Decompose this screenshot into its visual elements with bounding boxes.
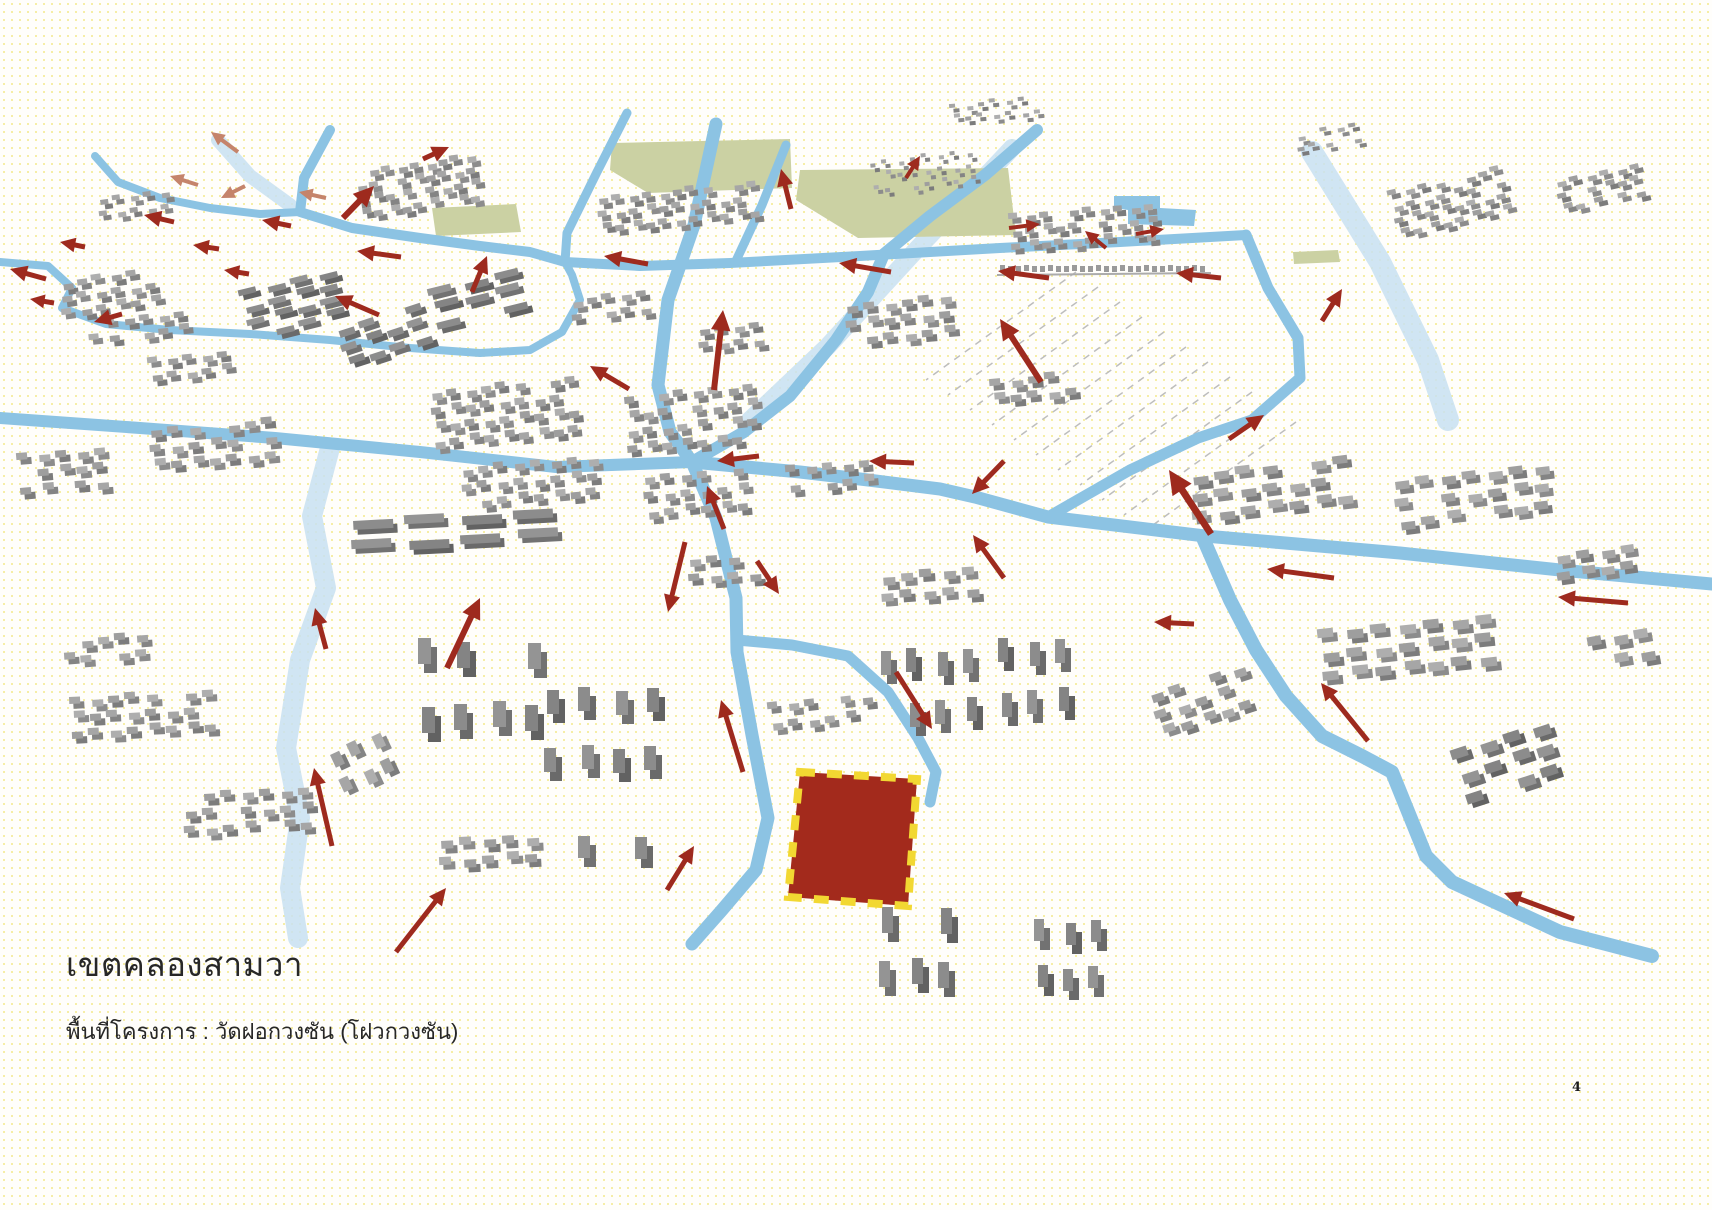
building (439, 856, 451, 865)
building (1030, 239, 1039, 246)
building (569, 411, 580, 419)
building (738, 503, 749, 511)
building (428, 164, 438, 171)
building (1428, 636, 1445, 647)
building (554, 429, 565, 437)
building (942, 587, 955, 596)
building (484, 435, 495, 443)
building (466, 167, 476, 174)
flow-arrow-shaft (1178, 484, 1211, 534)
flow-arrow-shaft (714, 324, 721, 390)
building (550, 475, 561, 483)
building (924, 591, 937, 600)
building (1474, 632, 1491, 643)
building (184, 826, 195, 834)
building (886, 170, 891, 175)
building-shadow (953, 108, 959, 113)
building (280, 805, 291, 813)
building (1088, 966, 1098, 988)
building (733, 197, 743, 204)
building (1347, 628, 1364, 639)
building (1376, 648, 1393, 659)
canal (565, 113, 627, 262)
building (572, 314, 583, 321)
building (660, 473, 671, 481)
flow-arrow-shaft (671, 542, 685, 600)
building (455, 172, 465, 179)
building (824, 715, 835, 723)
building (867, 336, 879, 344)
building (747, 418, 758, 426)
building (697, 471, 708, 479)
building (549, 395, 560, 403)
shop-unit (1152, 266, 1157, 272)
shop-unit (1056, 266, 1061, 272)
building (900, 313, 912, 321)
building (962, 566, 975, 575)
building (147, 356, 158, 363)
building (938, 652, 948, 676)
building (572, 470, 583, 478)
building (748, 397, 759, 405)
building (606, 311, 617, 318)
building (245, 421, 257, 429)
building (917, 295, 929, 303)
building (1068, 222, 1077, 229)
building (168, 358, 179, 365)
building (615, 224, 625, 231)
building (912, 958, 923, 984)
building (481, 386, 492, 394)
building (243, 792, 254, 800)
building-cluster (1034, 919, 1107, 1000)
building (431, 407, 442, 415)
building (135, 649, 146, 657)
building (78, 452, 90, 460)
building (672, 389, 683, 397)
building-shadow (998, 119, 1004, 124)
building (436, 420, 447, 428)
building (202, 808, 213, 816)
building-shadow (889, 192, 894, 197)
building (94, 447, 106, 455)
building (616, 691, 628, 715)
building (1428, 661, 1445, 672)
building (1030, 642, 1040, 666)
building (965, 116, 971, 121)
building (859, 460, 870, 468)
building (534, 494, 545, 502)
green-field (432, 204, 521, 236)
green-field (1293, 250, 1340, 264)
building (717, 434, 728, 442)
building (873, 185, 878, 190)
building (567, 457, 578, 465)
building (450, 423, 461, 431)
building-cluster (63, 631, 154, 670)
flow-arrow-shaft (1570, 598, 1628, 603)
building (1450, 656, 1467, 667)
building-cluster (880, 565, 984, 609)
building (1008, 213, 1017, 220)
building (520, 411, 531, 419)
building (1494, 504, 1509, 514)
building (1394, 498, 1409, 508)
building (43, 482, 55, 490)
building (1461, 470, 1476, 480)
building-shadow (970, 121, 976, 126)
building (622, 295, 633, 302)
building (463, 470, 474, 478)
map-slide: เขตคลองสามวา พื้นที่โครงการ : วัดฝอกวงซั… (0, 0, 1712, 1210)
building (149, 722, 160, 730)
building (514, 397, 525, 405)
building-shadow (947, 181, 952, 186)
building (688, 216, 698, 223)
building (534, 413, 545, 421)
building (260, 416, 272, 424)
building-cluster (767, 691, 880, 737)
building (1475, 614, 1492, 625)
building (98, 482, 110, 490)
flow-arrow-head (10, 266, 29, 282)
building (188, 442, 200, 450)
building (923, 315, 935, 323)
building (1442, 476, 1457, 486)
building-shadow (941, 171, 946, 176)
building (402, 206, 412, 213)
building-shadow (960, 173, 965, 178)
flow-arrow-shaft (1279, 571, 1334, 578)
building (807, 466, 818, 474)
building (976, 112, 982, 117)
building (955, 168, 960, 173)
building-shadow (1022, 101, 1028, 106)
building-shadow (878, 190, 883, 195)
building (227, 439, 239, 447)
building (704, 187, 714, 194)
building (88, 728, 99, 736)
building (1091, 920, 1101, 942)
building (690, 203, 700, 210)
building (634, 219, 644, 226)
building (464, 419, 475, 427)
building (39, 454, 51, 462)
building (413, 202, 423, 209)
building (1113, 205, 1122, 212)
flow-arrow-shaft (396, 897, 439, 952)
building (924, 182, 929, 187)
building (129, 712, 140, 720)
building (732, 437, 743, 445)
building-cluster (350, 507, 563, 558)
building (518, 491, 529, 499)
building (883, 332, 895, 340)
flow-arrow-shaft (1008, 331, 1041, 382)
building (446, 388, 457, 396)
building (1055, 639, 1065, 663)
building (443, 188, 453, 195)
building (554, 408, 565, 416)
building-shadow (972, 158, 977, 163)
building (645, 477, 656, 485)
building (92, 462, 104, 470)
building (683, 437, 694, 445)
flow-arrow-shaft (667, 856, 688, 890)
building (1101, 209, 1110, 216)
flow-arrow-head (310, 768, 326, 786)
building (1007, 101, 1013, 106)
building (914, 186, 919, 191)
building-shadow (1011, 105, 1017, 110)
building (941, 297, 953, 305)
building (642, 426, 653, 434)
building (978, 102, 984, 107)
building (863, 301, 875, 309)
building (661, 193, 671, 200)
building-cluster (622, 381, 767, 461)
building (380, 165, 390, 172)
building (692, 405, 703, 413)
building (864, 474, 875, 482)
building (885, 188, 890, 193)
building (677, 220, 687, 227)
district-map (0, 0, 1712, 1210)
canal (0, 418, 692, 467)
building (223, 824, 234, 832)
building (644, 412, 655, 420)
building (20, 487, 32, 495)
building (1298, 136, 1306, 141)
building (211, 437, 223, 445)
building (870, 163, 875, 168)
shop-unit (1096, 265, 1101, 271)
building (659, 393, 670, 401)
building-shadow (925, 158, 930, 163)
building (451, 402, 462, 410)
flow-arrow-head (1267, 563, 1285, 579)
building (1481, 657, 1498, 668)
building (879, 961, 890, 987)
building (717, 487, 728, 495)
building-cluster (570, 288, 657, 328)
building (785, 464, 796, 472)
building (90, 713, 101, 721)
building (173, 311, 184, 318)
building (578, 836, 590, 858)
building (1018, 97, 1024, 102)
building (454, 704, 467, 730)
building (647, 688, 659, 712)
building (729, 388, 740, 396)
building (635, 837, 647, 859)
building (55, 450, 67, 458)
building (504, 429, 515, 437)
building (624, 396, 635, 404)
building (883, 577, 896, 586)
building (897, 172, 902, 177)
flow-arrow-head (170, 174, 185, 186)
building (60, 463, 72, 471)
building-shadow (982, 107, 988, 112)
building (1420, 515, 1435, 525)
building (899, 589, 912, 598)
building (1044, 371, 1056, 379)
building (186, 693, 197, 701)
building-shadow (943, 160, 948, 165)
flow-arrow-head (144, 211, 162, 227)
building (74, 710, 85, 718)
building (698, 418, 709, 426)
building (690, 559, 701, 567)
building (1453, 619, 1470, 630)
building (284, 819, 295, 827)
building (738, 208, 748, 215)
field-row-line (970, 302, 1120, 410)
building (847, 306, 859, 314)
building (1044, 223, 1053, 230)
building (673, 189, 683, 196)
building (629, 410, 640, 418)
site-layer (788, 772, 917, 906)
building (513, 478, 524, 486)
building-shadow (929, 186, 934, 191)
building (449, 437, 460, 445)
building (88, 333, 99, 340)
building (647, 203, 657, 210)
building (571, 492, 582, 500)
flow-arrow-head (711, 310, 730, 331)
building (810, 720, 821, 728)
building (611, 194, 621, 201)
building (153, 375, 164, 382)
building (1346, 647, 1363, 658)
building (1535, 466, 1550, 476)
flow-arrow-head (262, 215, 280, 231)
building (727, 402, 738, 410)
flow-arrow-shaft (317, 780, 332, 846)
building (1066, 923, 1076, 945)
building (627, 445, 638, 453)
building (663, 428, 674, 436)
building (749, 322, 760, 329)
building (659, 206, 669, 213)
building (516, 383, 527, 391)
building (147, 694, 158, 702)
building (76, 466, 88, 474)
building (282, 791, 293, 799)
building (144, 332, 155, 339)
building (966, 164, 971, 169)
building (863, 697, 874, 705)
building (1023, 113, 1029, 118)
flow-arrow-shaft (724, 711, 743, 772)
building-shadow (958, 184, 963, 189)
building (1489, 471, 1504, 481)
shop-unit (1176, 266, 1181, 272)
building (482, 855, 494, 864)
building (502, 835, 514, 844)
shop-unit (1040, 266, 1045, 272)
building (179, 323, 190, 330)
building (203, 355, 214, 362)
building (72, 731, 83, 739)
building (92, 699, 103, 707)
building (967, 589, 980, 598)
building (989, 378, 1001, 386)
building (828, 483, 839, 491)
building (470, 432, 481, 440)
building (1034, 919, 1044, 941)
building (551, 380, 562, 388)
building (967, 697, 977, 721)
building (700, 329, 711, 336)
flow-arrow-head (30, 294, 46, 308)
building-shadow (1324, 131, 1332, 136)
building (841, 696, 852, 704)
building (1056, 226, 1065, 233)
building (403, 188, 413, 195)
building (998, 638, 1008, 662)
building (1323, 652, 1340, 663)
building (620, 307, 631, 314)
building (804, 698, 815, 706)
flow-arrow-head (664, 594, 680, 612)
building (585, 487, 596, 495)
building (454, 183, 464, 190)
building (184, 707, 195, 715)
building (1118, 224, 1127, 231)
building-shadow (918, 190, 923, 195)
building-shadow (1331, 147, 1339, 152)
building (754, 340, 765, 347)
building (173, 446, 185, 454)
building (733, 339, 744, 346)
building (1012, 380, 1024, 388)
building (166, 725, 177, 733)
building (167, 426, 179, 434)
building (1355, 138, 1363, 143)
building (721, 201, 731, 208)
building-shadow (1009, 115, 1015, 120)
building (151, 430, 163, 438)
building (994, 115, 1000, 120)
shop-unit (1168, 265, 1173, 271)
building (229, 425, 241, 433)
building (1317, 628, 1334, 639)
building (902, 299, 914, 307)
building (658, 218, 668, 225)
building (471, 196, 481, 203)
building (166, 370, 177, 377)
building (418, 638, 431, 664)
building (527, 838, 539, 847)
building (160, 316, 171, 323)
field-row-line (948, 287, 1098, 395)
building (494, 381, 505, 389)
building (459, 836, 471, 845)
building-cluster (1587, 626, 1662, 676)
building (1370, 623, 1387, 634)
building (729, 558, 740, 566)
pale-canal (286, 448, 330, 938)
building (1352, 664, 1369, 675)
shop-unit (1136, 266, 1141, 272)
building (1132, 208, 1141, 215)
building (555, 489, 566, 497)
building (201, 368, 212, 375)
building (1534, 501, 1549, 511)
